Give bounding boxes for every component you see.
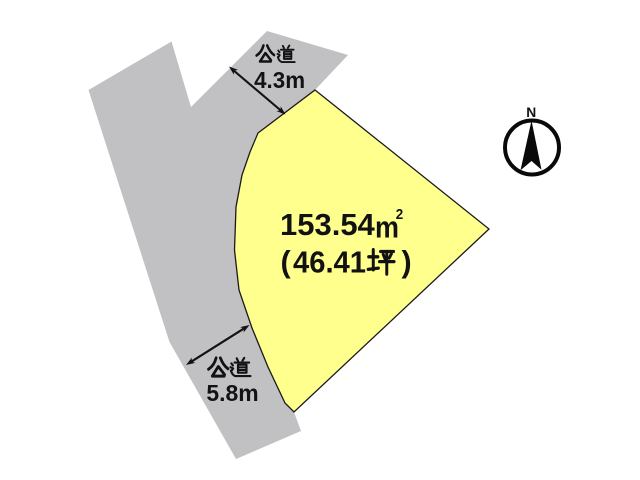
svg-text:(: ( (281, 245, 292, 279)
svg-text:4.3m: 4.3m (254, 67, 305, 93)
svg-text:): ) (402, 245, 412, 279)
svg-text:153.54: 153.54 (280, 208, 375, 242)
svg-text:5.8m: 5.8m (206, 380, 258, 406)
svg-text:2: 2 (396, 207, 404, 223)
svg-text:46.41: 46.41 (293, 246, 366, 280)
svg-text:N: N (526, 104, 536, 120)
